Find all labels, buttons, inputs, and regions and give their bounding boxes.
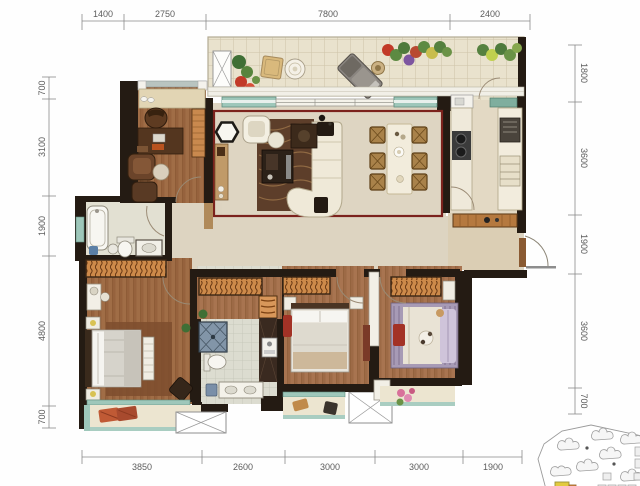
svg-text:2750: 2750 (155, 9, 175, 19)
svg-text:1400: 1400 (93, 9, 113, 19)
svg-text:4800: 4800 (37, 321, 47, 341)
svg-text:3000: 3000 (320, 462, 340, 472)
svg-text:1800: 1800 (579, 63, 589, 83)
svg-text:1900: 1900 (483, 462, 503, 472)
svg-text:3600: 3600 (579, 148, 589, 168)
svg-text:2400: 2400 (480, 9, 500, 19)
svg-text:3600: 3600 (579, 321, 589, 341)
svg-text:3850: 3850 (132, 462, 152, 472)
svg-text:7800: 7800 (318, 9, 338, 19)
svg-text:3000: 3000 (409, 462, 429, 472)
svg-text:700: 700 (37, 409, 47, 424)
svg-text:2600: 2600 (233, 462, 253, 472)
svg-text:1900: 1900 (579, 234, 589, 254)
svg-text:3100: 3100 (37, 137, 47, 157)
svg-text:700: 700 (579, 393, 589, 408)
svg-text:700: 700 (37, 80, 47, 95)
svg-text:1900: 1900 (37, 216, 47, 236)
